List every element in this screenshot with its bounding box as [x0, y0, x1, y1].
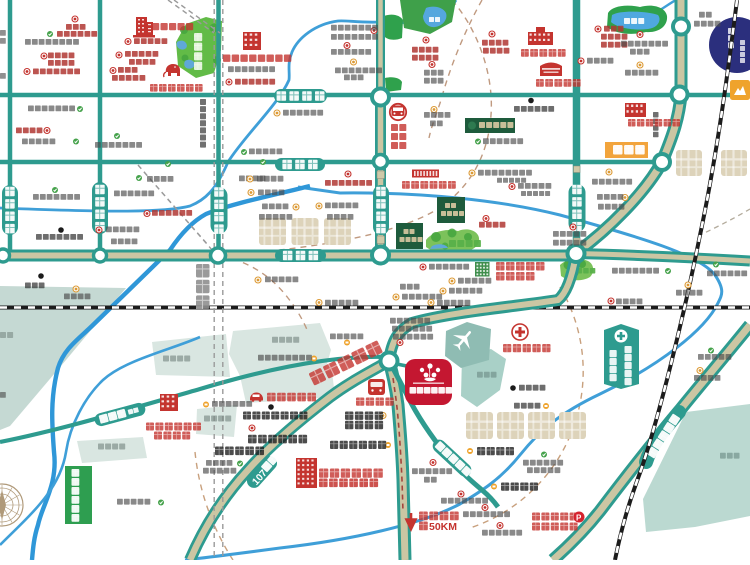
svg-text:P: P — [576, 514, 582, 523]
svg-text:50KM: 50KM — [429, 521, 457, 533]
